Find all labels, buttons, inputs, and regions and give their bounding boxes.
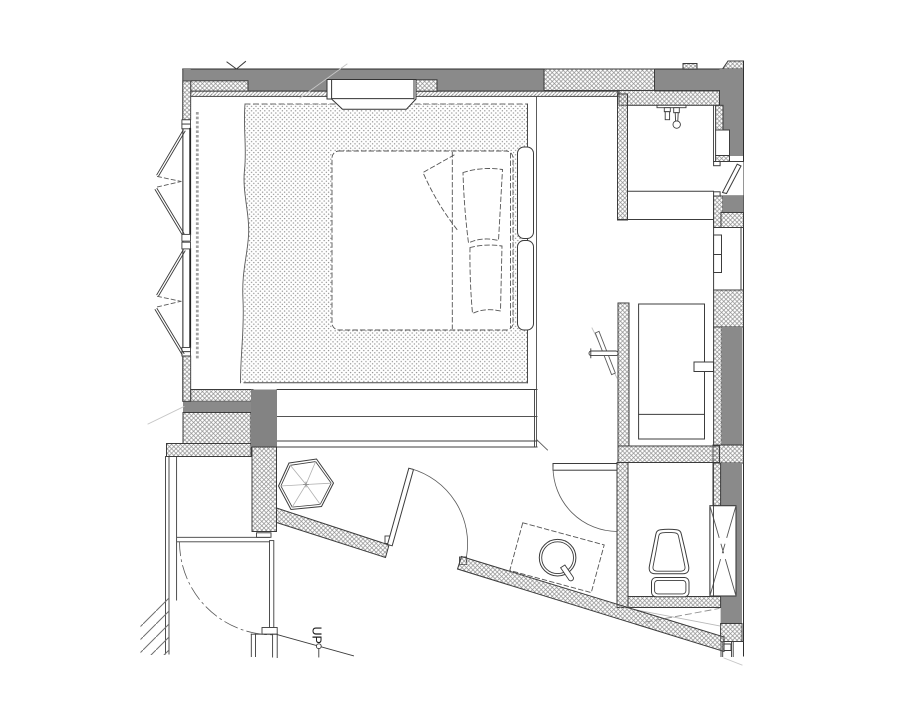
svg-text:UP: UP	[310, 627, 324, 644]
